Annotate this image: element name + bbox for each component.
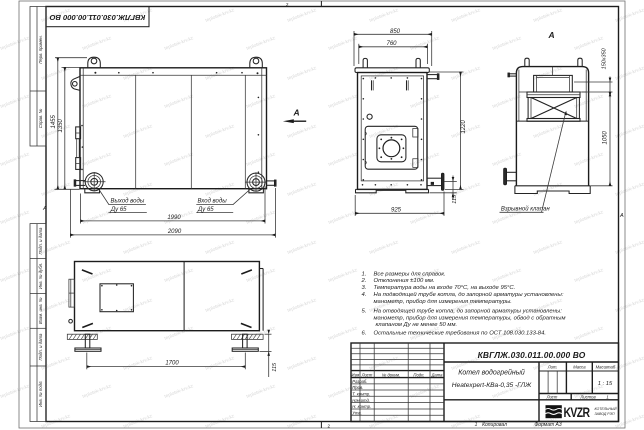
svg-text:Ду 65: Ду 65	[197, 207, 214, 213]
svg-text:1: 1	[606, 395, 608, 400]
svg-text:На отводящей трубе котла, до з: На отводящей трубе котла, до запорной ар…	[374, 307, 563, 314]
svg-text:Подп. и дата: Подп. и дата	[38, 333, 43, 361]
svg-text:Отклонения ±100 мм.: Отклонения ±100 мм.	[374, 278, 435, 284]
svg-text:ЗАВОД РЭП: ЗАВОД РЭП	[595, 412, 616, 416]
svg-text:Инв. № дубл.: Инв. № дубл.	[38, 263, 43, 289]
svg-text:1700: 1700	[165, 361, 179, 367]
svg-text:Формат А3: Формат А3	[534, 422, 562, 428]
svg-text:Лист: Лист	[546, 395, 558, 400]
svg-text:3.: 3.	[362, 285, 367, 291]
svg-text:Перв. примен.: Перв. примен.	[38, 35, 43, 64]
svg-text:1050: 1050	[603, 130, 609, 144]
svg-text:1: 1	[475, 422, 478, 428]
svg-text:150х350: 150х350	[602, 47, 608, 69]
svg-text:760: 760	[386, 41, 397, 47]
svg-text:А: А	[548, 30, 555, 40]
svg-text:А: А	[293, 108, 300, 118]
svg-text:Т. контр.: Т. контр.	[352, 392, 370, 397]
svg-text:Все размеры для справок.: Все размеры для справок.	[374, 272, 446, 278]
svg-text:Heatexpert-КВа-0,35 -ГЛЖ: Heatexpert-КВа-0,35 -ГЛЖ	[452, 382, 532, 389]
svg-text:Остальные технические требован: Остальные технические требования по ОСТ …	[374, 331, 547, 337]
svg-text:KVZR: KVZR	[564, 404, 591, 420]
svg-text:1.: 1.	[362, 272, 367, 278]
svg-text:КОТЕЛЬНЫЙ: КОТЕЛЬНЫЙ	[595, 407, 618, 411]
svg-text:1350: 1350	[58, 118, 64, 132]
svg-text:5.: 5.	[362, 308, 367, 314]
svg-text:№ докум.: № докум.	[382, 372, 400, 377]
svg-text:115: 115	[452, 194, 458, 204]
svg-text:манометр, прибор для измерения: манометр, прибор для измерения температу…	[374, 299, 512, 305]
svg-text:Подп.: Подп.	[413, 372, 424, 377]
svg-text:115: 115	[272, 362, 278, 372]
svg-text:Подп. и дата: Подп. и дата	[38, 227, 43, 255]
svg-text:1990: 1990	[167, 215, 181, 221]
svg-text:А: А	[619, 213, 624, 219]
svg-text:Копировал: Копировал	[482, 422, 507, 428]
svg-text:1455: 1455	[51, 114, 57, 128]
svg-text:2.: 2.	[361, 278, 367, 284]
svg-text:Лист: Лист	[361, 372, 373, 377]
svg-text:А: А	[42, 206, 47, 212]
svg-text:Н. контр.: Н. контр.	[352, 404, 371, 409]
svg-text:Выход воды: Выход воды	[111, 198, 145, 204]
svg-text:Масштаб: Масштаб	[596, 365, 616, 370]
svg-text:КВГЛЖ.030.011.00.000 ВО: КВГЛЖ.030.011.00.000 ВО	[478, 350, 586, 360]
svg-text:1220: 1220	[461, 119, 467, 133]
svg-text:Ду 65: Ду 65	[110, 207, 127, 213]
svg-text:КВГЛЖ.030.011.00.000 ВО: КВГЛЖ.030.011.00.000 ВО	[50, 13, 146, 22]
svg-text:6.: 6.	[362, 331, 367, 337]
svg-text:1 : 15: 1 : 15	[598, 381, 613, 387]
svg-text:Температура воды на входе 70°С: Температура воды на входе 70°С, на выход…	[374, 285, 516, 291]
svg-text:Вход воды: Вход воды	[198, 198, 228, 204]
svg-text:2090: 2090	[167, 229, 182, 235]
svg-text:На подводящей трубе котла, до: На подводящей трубе котла, до запорной а…	[374, 291, 564, 298]
svg-text:клапаном Ду не менее 50 мм.: клапаном Ду не менее 50 мм.	[376, 322, 458, 328]
svg-text:манометр, прибор для измерения: манометр, прибор для измерения температу…	[374, 315, 566, 321]
svg-text:Дата: Дата	[430, 372, 443, 377]
svg-text:Утв.: Утв.	[352, 410, 362, 415]
svg-text:925: 925	[391, 207, 402, 213]
svg-text:Котел водогрейный: Котел водогрейный	[458, 368, 525, 376]
svg-text:Масса: Масса	[573, 365, 586, 370]
svg-text:Справ. №: Справ. №	[38, 108, 43, 128]
svg-text:Взам. инв. №: Взам. инв. №	[38, 297, 43, 324]
svg-text:Изм: Изм	[352, 372, 360, 377]
svg-text:Лит.: Лит.	[547, 365, 558, 370]
svg-text:Разраб.: Разраб.	[352, 379, 367, 384]
svg-text:Пров.: Пров.	[352, 385, 363, 390]
svg-text:Нач.отд.: Нач.отд.	[352, 398, 370, 403]
svg-text:Инв. № подл.: Инв. № подл.	[38, 380, 43, 407]
svg-text:850: 850	[390, 29, 401, 35]
svg-text:Листов: Листов	[579, 395, 596, 400]
svg-text:4.: 4.	[362, 292, 367, 298]
